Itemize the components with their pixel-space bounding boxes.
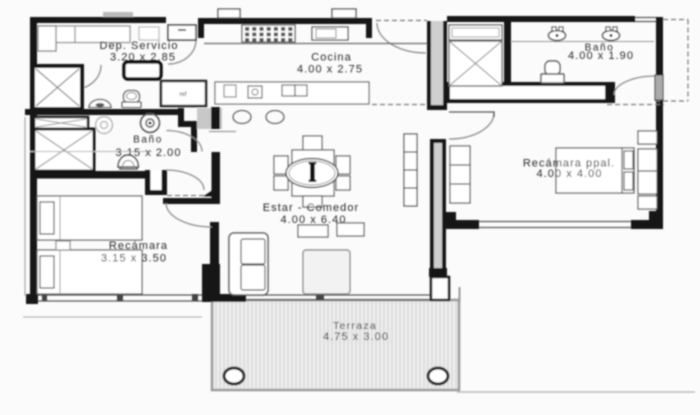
svg-text:Recámara: Recámara <box>109 240 168 252</box>
svg-text:ref: ref <box>179 92 186 98</box>
svg-text:Cocina: Cocina <box>311 52 352 64</box>
svg-text:4.00 x 4.00: 4.00 x 4.00 <box>537 168 603 180</box>
svg-text:Estar - Comedor: Estar - Comedor <box>263 202 359 214</box>
svg-text:3.15 x 3.50: 3.15 x 3.50 <box>101 253 167 265</box>
svg-text:Baño: Baño <box>133 135 163 146</box>
svg-text:4.75 x 3.00: 4.75 x 3.00 <box>323 331 389 343</box>
svg-text:4.00 x 1.90: 4.00 x 1.90 <box>568 50 634 62</box>
svg-text:4.00 x 2.75: 4.00 x 2.75 <box>297 64 363 76</box>
svg-text:Dep. Servicio: Dep. Servicio <box>99 40 178 52</box>
svg-text:3.15 x 2.00: 3.15 x 2.00 <box>116 147 182 159</box>
svg-text:3.20 x 2.85: 3.20 x 2.85 <box>110 52 176 64</box>
svg-text:4.00 x 6.40: 4.00 x 6.40 <box>281 214 347 226</box>
